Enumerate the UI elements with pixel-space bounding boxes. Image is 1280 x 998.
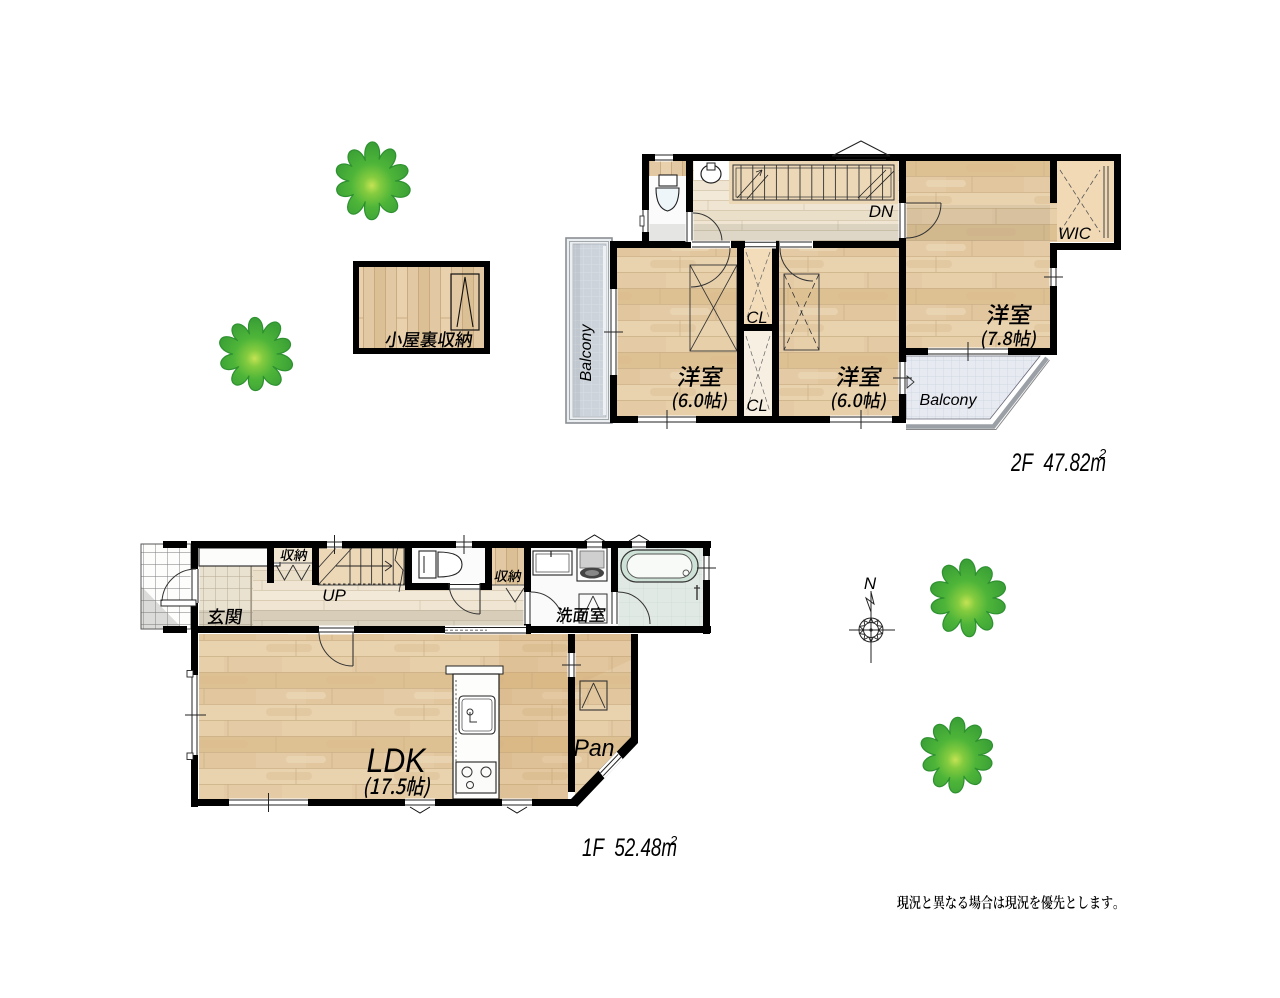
- svg-text:UP: UP: [322, 586, 346, 605]
- svg-text:WIC: WIC: [1058, 224, 1092, 243]
- svg-text:N: N: [864, 574, 877, 593]
- svg-text:LDK: LDK: [367, 742, 427, 780]
- svg-text:CL: CL: [746, 397, 767, 415]
- svg-text:2F 47.82m: 2F 47.82m: [1010, 449, 1106, 477]
- svg-text:DN: DN: [869, 202, 894, 221]
- svg-text:CL: CL: [746, 309, 767, 327]
- svg-text:2: 2: [1098, 446, 1107, 461]
- svg-text:Balcony: Balcony: [578, 324, 595, 382]
- svg-text:2: 2: [669, 833, 678, 848]
- svg-text:1F 52.48m: 1F 52.48m: [582, 834, 677, 862]
- svg-text:Pan: Pan: [574, 735, 615, 762]
- svg-text:Balcony: Balcony: [920, 392, 978, 409]
